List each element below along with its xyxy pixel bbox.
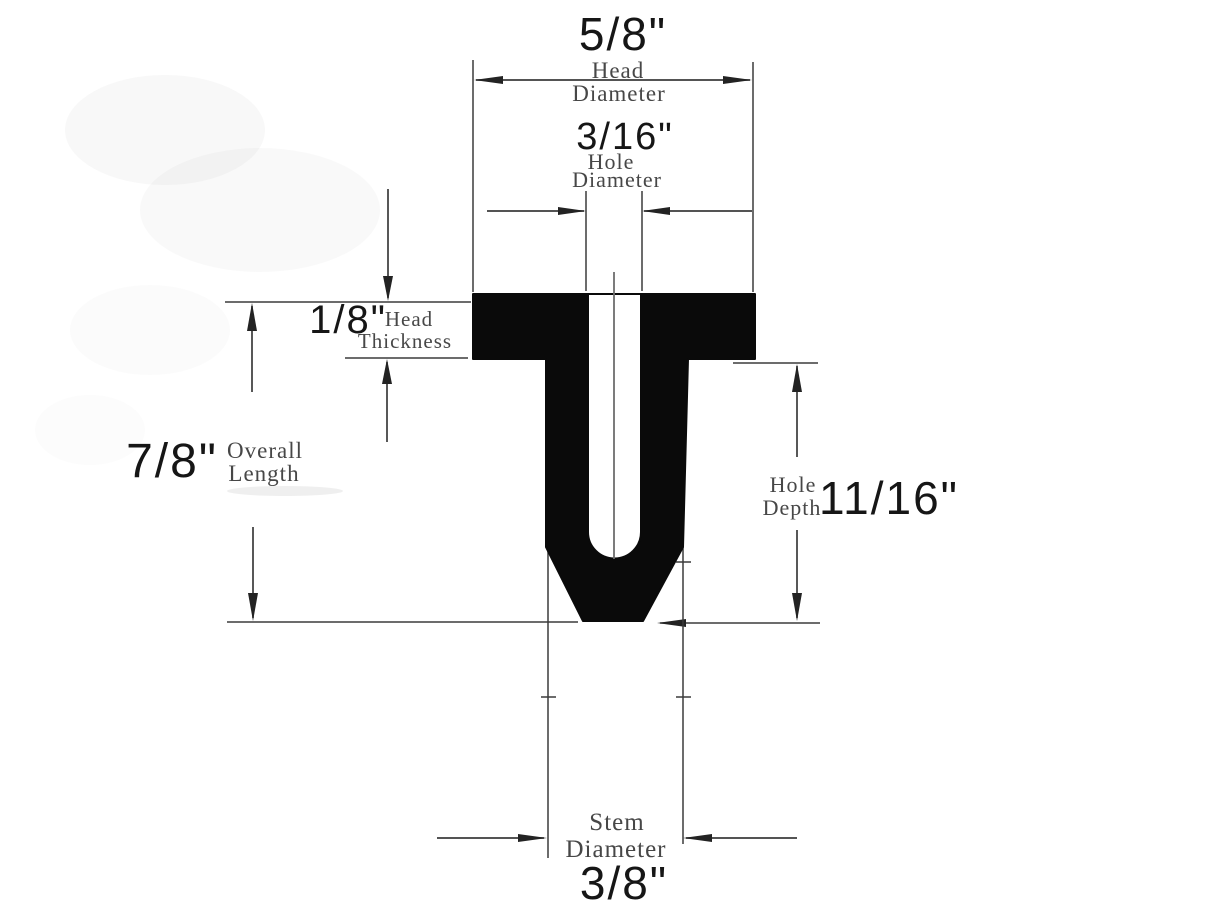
dimension-hole-depth: Hole Depth 11/16" [657,363,959,627]
grommet-dimension-diagram: 5/8" Head Diameter 3/16" Hole Diameter 1… [0,0,1214,911]
overall-length-label-2: Length [228,461,299,486]
stem-diameter-value: 3/8" [580,857,668,909]
head-diameter-label-1: Head [592,58,645,83]
arrowhead-left-icon [657,619,686,627]
hole-depth-label-1: Hole [770,472,817,497]
arrowhead-up-icon [792,364,802,392]
arrowhead-left-icon [474,76,503,84]
scan-artifacts [35,75,380,496]
head-diameter-value: 5/8" [579,8,667,60]
arrowhead-right-icon [518,834,547,842]
diagram-canvas: 5/8" Head Diameter 3/16" Hole Diameter 1… [0,0,1214,911]
arrowhead-up-icon [247,303,257,331]
arrowhead-up-icon [382,359,392,384]
head-thickness-label-1: Head [385,307,433,331]
scan-smudge [70,285,230,375]
arrowhead-down-icon [248,593,258,621]
overall-length-value: 7/8" [126,435,218,488]
arrowhead-right-icon [558,207,586,215]
hole-depth-value: 11/16" [819,472,959,524]
arrowhead-left-icon [642,207,670,215]
hole-diameter-label-2: Diameter [572,167,662,192]
arrowhead-left-icon [683,834,712,842]
head-diameter-label-2: Diameter [572,81,666,106]
head-thickness-label-2: Thickness [358,329,452,353]
stem-diameter-label-1: Stem [589,809,644,836]
scan-smudge [140,148,380,272]
hole-depth-label-2: Depth [763,495,822,520]
arrowhead-right-icon [723,76,752,84]
overall-length-label-1: Overall [227,438,303,463]
scan-smudge [227,486,343,496]
dimension-hole-diameter: 3/16" Hole Diameter [487,116,752,291]
arrowhead-down-icon [792,593,802,621]
